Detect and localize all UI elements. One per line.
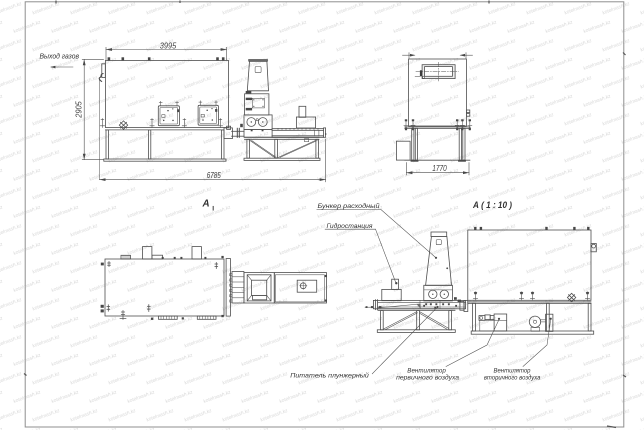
svg-text:Питатель плунжерный: Питатель плунжерный (290, 372, 369, 380)
svg-text:6785: 6785 (207, 171, 221, 180)
svg-text:Бункер расходный: Бункер расходный (318, 202, 380, 210)
svg-text:Вентилятор: Вентилятор (494, 367, 531, 374)
svg-text:Выход газов: Выход газов (40, 51, 80, 60)
svg-text:Вентилятор: Вентилятор (407, 367, 446, 374)
svg-text:3995: 3995 (160, 42, 177, 51)
svg-text:вторичного воздуха: вторичного воздуха (484, 374, 541, 382)
svg-text:первичного воздуха: первичного воздуха (396, 374, 459, 382)
svg-text:А ( 1 : 10 ): А ( 1 : 10 ) (472, 200, 512, 210)
svg-text:Гидростанция: Гидростанция (327, 222, 373, 230)
svg-text:А: А (202, 199, 210, 210)
svg-text:1770: 1770 (432, 164, 447, 173)
svg-text:2905: 2905 (75, 101, 84, 119)
